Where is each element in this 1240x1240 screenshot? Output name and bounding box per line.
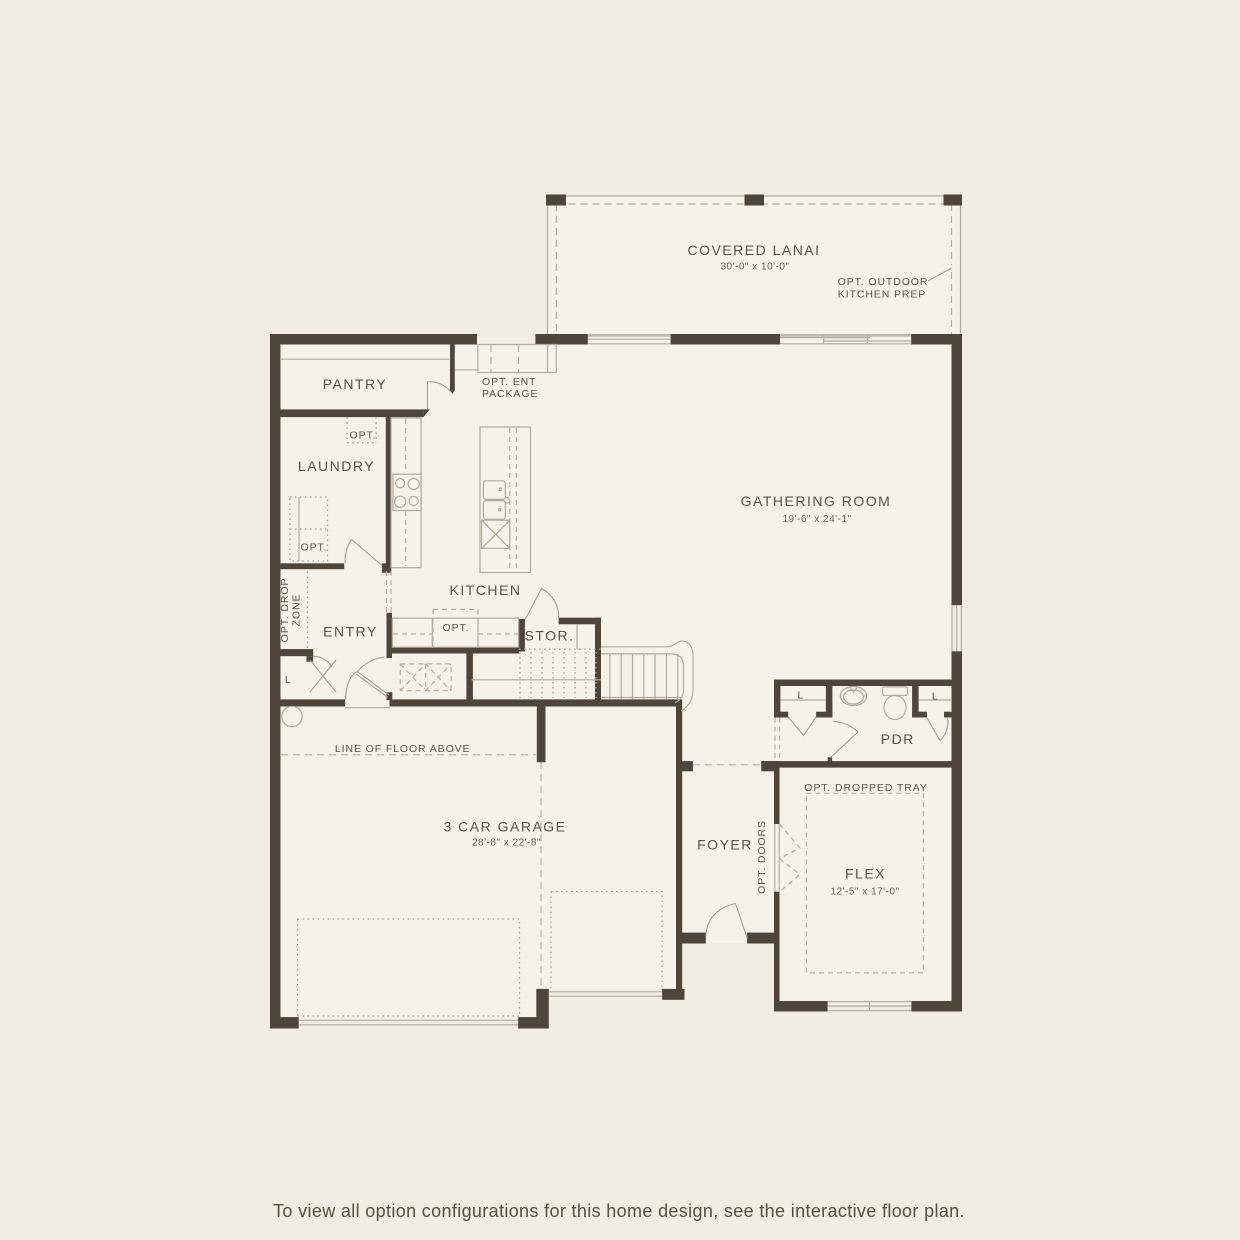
svg-text:OPT. DOORS: OPT. DOORS <box>756 820 768 894</box>
svg-text:STOR.: STOR. <box>524 628 574 644</box>
svg-text:L: L <box>797 690 804 702</box>
svg-text:3 CAR GARAGE: 3 CAR GARAGE <box>443 819 566 835</box>
svg-text:OPT. OUTDOOR: OPT. OUTDOOR <box>838 276 929 288</box>
svg-text:OPT.: OPT. <box>443 622 470 634</box>
svg-text:PDR: PDR <box>881 731 915 747</box>
svg-text:OPT. DROP: OPT. DROP <box>279 578 291 643</box>
svg-text:LAUNDRY: LAUNDRY <box>298 458 375 474</box>
svg-text:FLEX: FLEX <box>845 866 886 882</box>
svg-text:L: L <box>285 674 292 686</box>
svg-text:KITCHEN: KITCHEN <box>450 582 522 598</box>
svg-text:KITCHEN PREP: KITCHEN PREP <box>838 289 926 301</box>
svg-text:To view all option configurati: To view all option configurations for th… <box>273 1201 965 1221</box>
svg-text:FOYER: FOYER <box>697 837 753 853</box>
svg-text:28'-8" x 22'-8": 28'-8" x 22'-8" <box>472 838 541 849</box>
svg-text:PACKAGE: PACKAGE <box>482 388 538 400</box>
svg-text:OPT.: OPT. <box>350 430 377 442</box>
svg-text:ENTRY: ENTRY <box>323 624 378 640</box>
svg-text:OPT. DROPPED TRAY: OPT. DROPPED TRAY <box>804 782 927 794</box>
svg-text:OPT. ENT: OPT. ENT <box>482 376 536 388</box>
svg-text:OPT.: OPT. <box>301 542 328 554</box>
svg-text:ZONE: ZONE <box>291 594 303 627</box>
svg-text:PANTRY: PANTRY <box>323 376 388 392</box>
svg-text:COVERED LANAI: COVERED LANAI <box>687 242 820 258</box>
svg-text:L: L <box>932 691 939 703</box>
svg-text:GATHERING ROOM: GATHERING ROOM <box>741 493 892 509</box>
svg-text:30'-0" x 10'-0": 30'-0" x 10'-0" <box>720 262 789 273</box>
svg-text:19'-6" x 24'-1": 19'-6" x 24'-1" <box>782 514 851 525</box>
svg-text:12'-5" x 17'-0": 12'-5" x 17'-0" <box>830 887 899 898</box>
svg-text:LINE OF FLOOR ABOVE: LINE OF FLOOR ABOVE <box>335 743 471 755</box>
